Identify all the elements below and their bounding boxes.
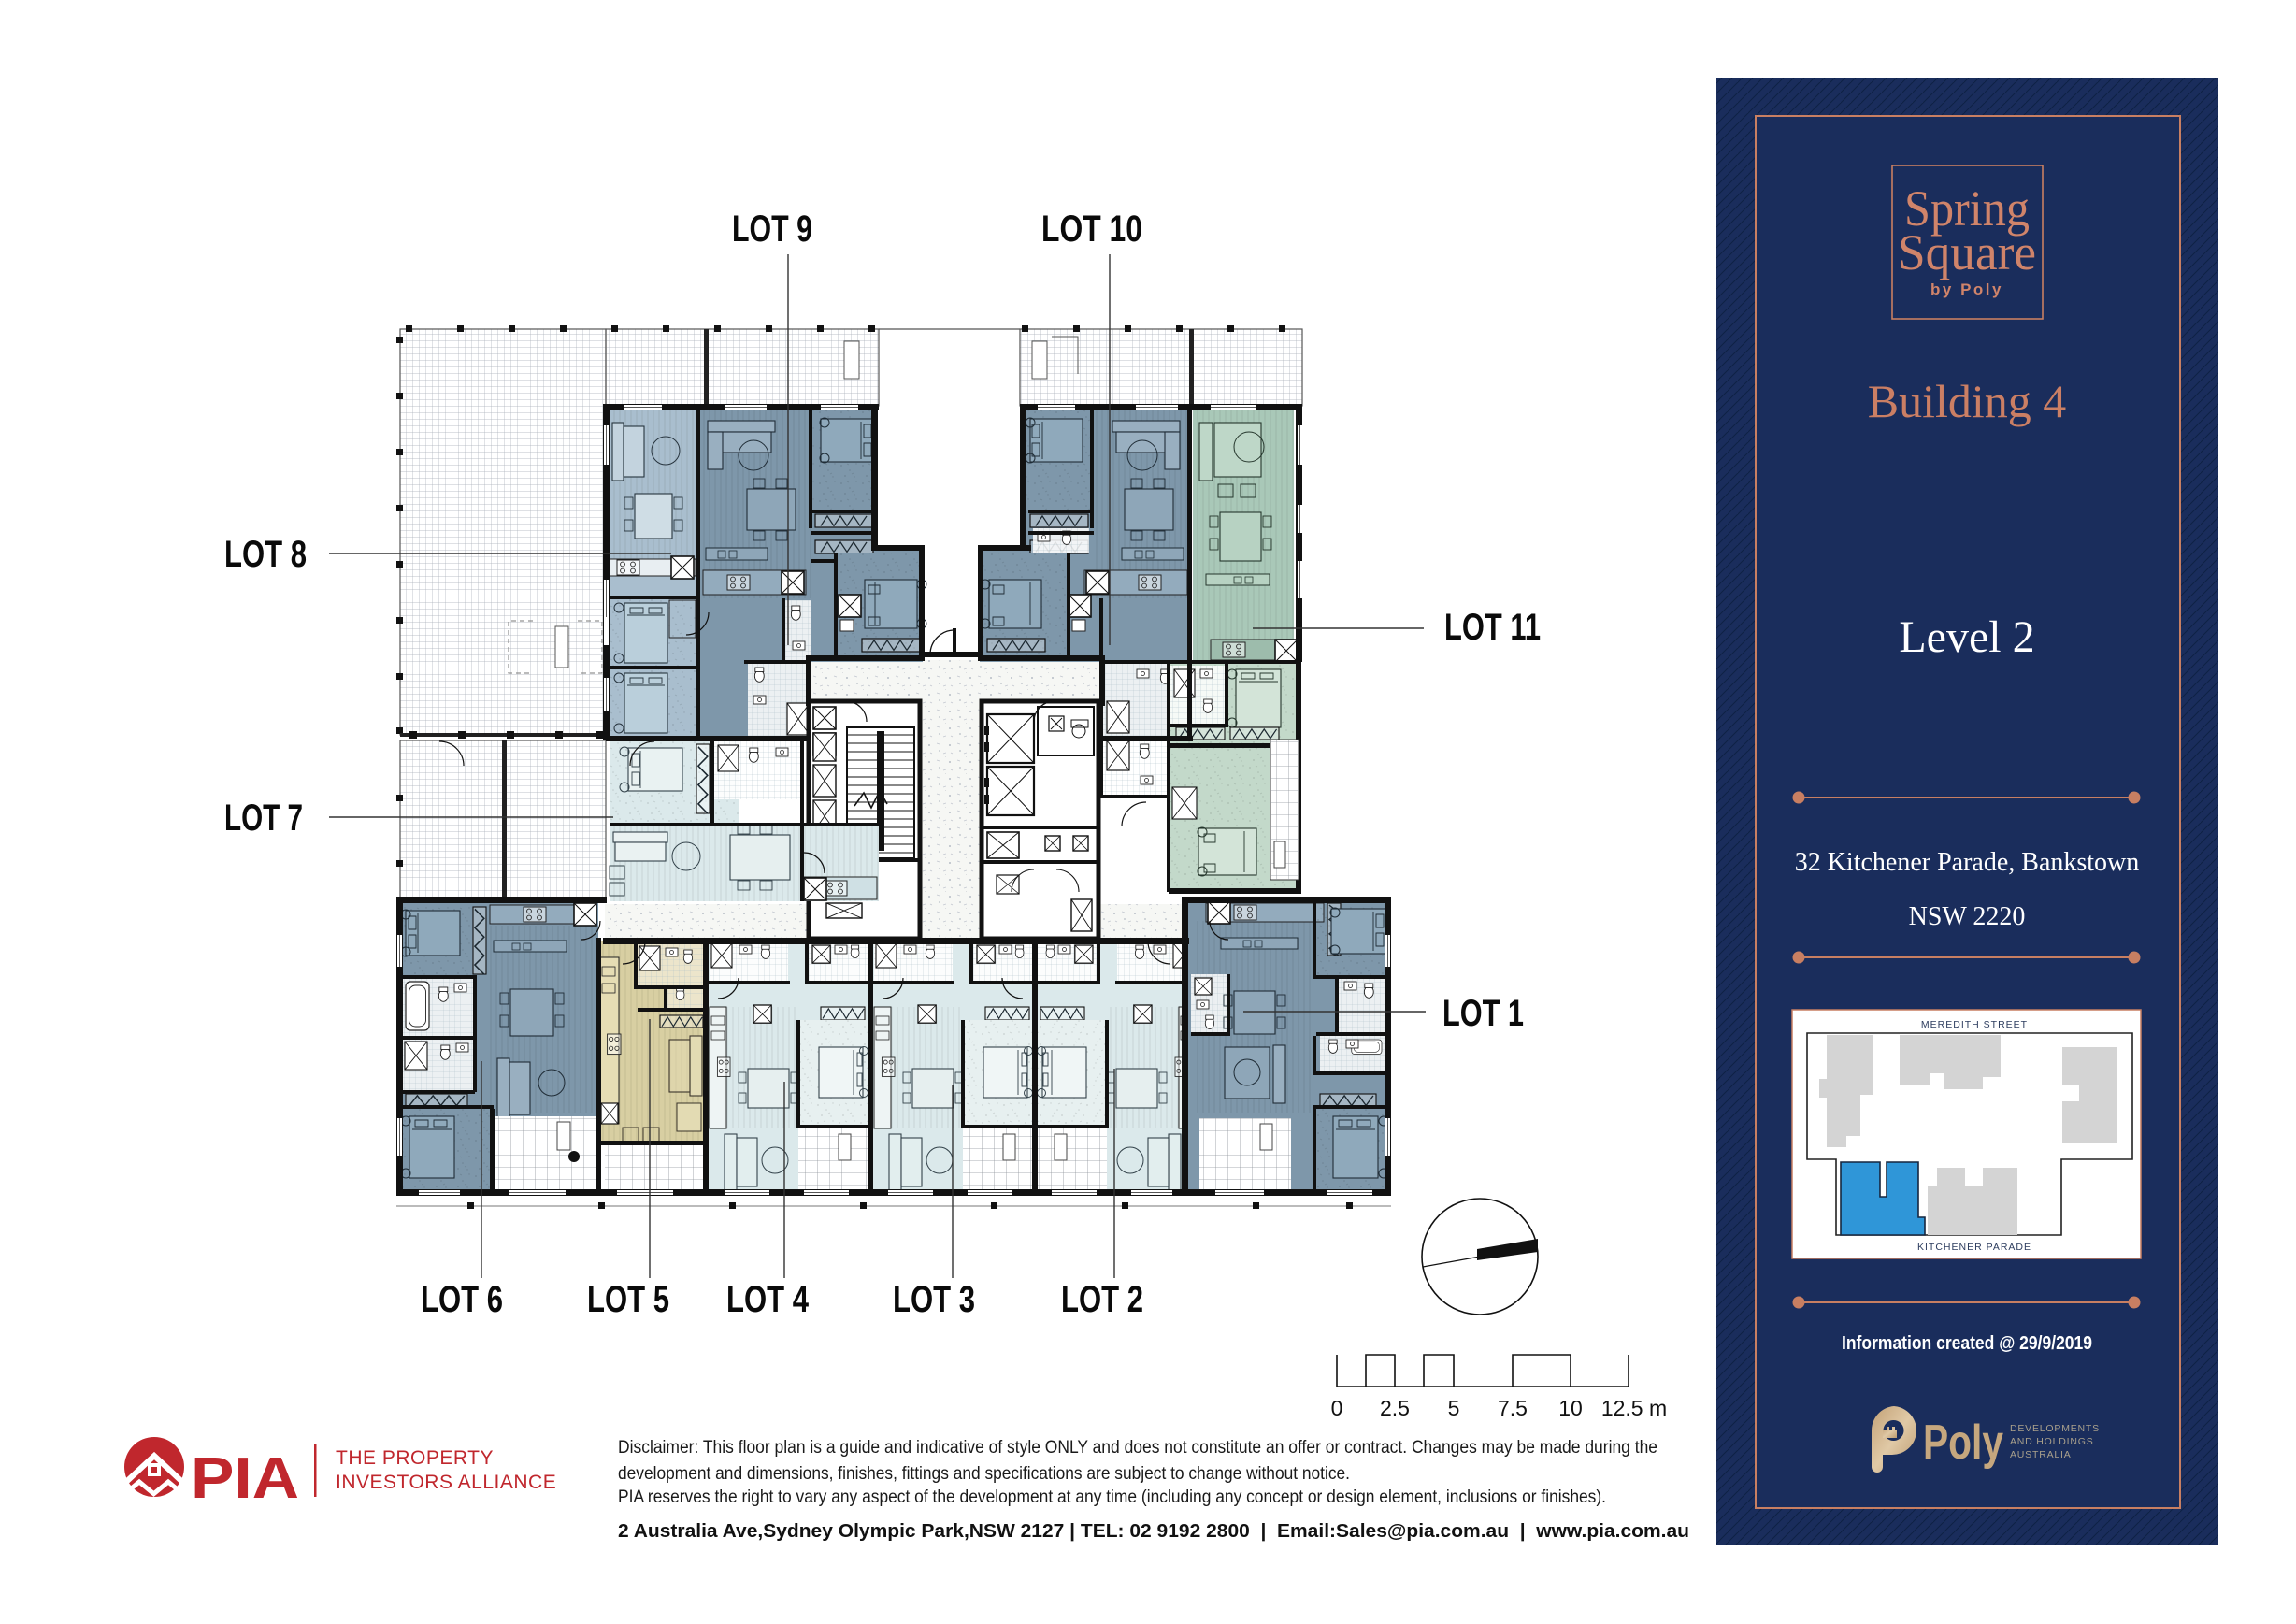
svg-text:2 Australia Ave,Sydney Olympic: 2 Australia Ave,Sydney Olympic Park,NSW … (618, 1520, 1689, 1542)
svg-text:Square: Square (1898, 224, 2036, 280)
svg-text:by Poly: by Poly (1930, 280, 2003, 298)
svg-text:LOT 7: LOT 7 (224, 798, 303, 839)
svg-text:Building 4: Building 4 (1868, 375, 2067, 427)
svg-text:5: 5 (1448, 1396, 1460, 1420)
svg-text:AND HOLDINGS: AND HOLDINGS (2010, 1436, 2094, 1447)
svg-text:2.5: 2.5 (1380, 1396, 1410, 1420)
svg-text:MEREDITH STREET: MEREDITH STREET (1921, 1019, 2028, 1030)
svg-text:THE PROPERTY: THE PROPERTY (336, 1447, 494, 1469)
svg-text:PIA: PIA (191, 1446, 299, 1511)
svg-text:PIA reserves the right to vary: PIA reserves the right to vary any aspec… (618, 1487, 1606, 1507)
svg-text:LOT 3: LOT 3 (893, 1279, 975, 1320)
svg-text:INVESTORS ALLIANCE: INVESTORS ALLIANCE (336, 1472, 556, 1493)
svg-text:10: 10 (1558, 1396, 1583, 1420)
svg-text:AUSTRALIA: AUSTRALIA (2010, 1449, 2072, 1460)
svg-text:12.5 m: 12.5 m (1601, 1396, 1667, 1420)
svg-text:LOT 9: LOT 9 (732, 208, 812, 250)
svg-text:DEVELOPMENTS: DEVELOPMENTS (2010, 1423, 2100, 1434)
svg-text:LOT 2: LOT 2 (1061, 1279, 1143, 1320)
svg-text:0: 0 (1331, 1396, 1343, 1420)
svg-text:development and dimensions, fi: development and dimensions, finishes, fi… (618, 1464, 1350, 1484)
svg-text:LOT 4: LOT 4 (726, 1279, 810, 1320)
svg-text:LOT 6: LOT 6 (421, 1279, 503, 1320)
svg-text:Disclaimer: This floor plan is: Disclaimer: This floor plan is a guide a… (618, 1438, 1657, 1458)
svg-text:LOT 10: LOT 10 (1041, 208, 1142, 250)
svg-text:LOT 11: LOT 11 (1444, 607, 1541, 648)
svg-text:KITCHENER PARADE: KITCHENER PARADE (1917, 1242, 2031, 1253)
svg-text:LOT 5: LOT 5 (587, 1279, 669, 1320)
svg-text:LOT 1: LOT 1 (1442, 993, 1524, 1034)
svg-text:Level 2: Level 2 (1899, 612, 2034, 662)
svg-text:7.5: 7.5 (1498, 1396, 1528, 1420)
svg-text:NSW 2220: NSW 2220 (1909, 902, 2026, 931)
svg-text:LOT 8: LOT 8 (224, 534, 307, 575)
svg-text:32 Kitchener Parade, Bankstown: 32 Kitchener Parade, Bankstown (1795, 848, 2140, 877)
svg-text:Information created @ 29/9/201: Information created @ 29/9/2019 (1842, 1333, 2092, 1354)
svg-text:Poly: Poly (1923, 1416, 2003, 1470)
